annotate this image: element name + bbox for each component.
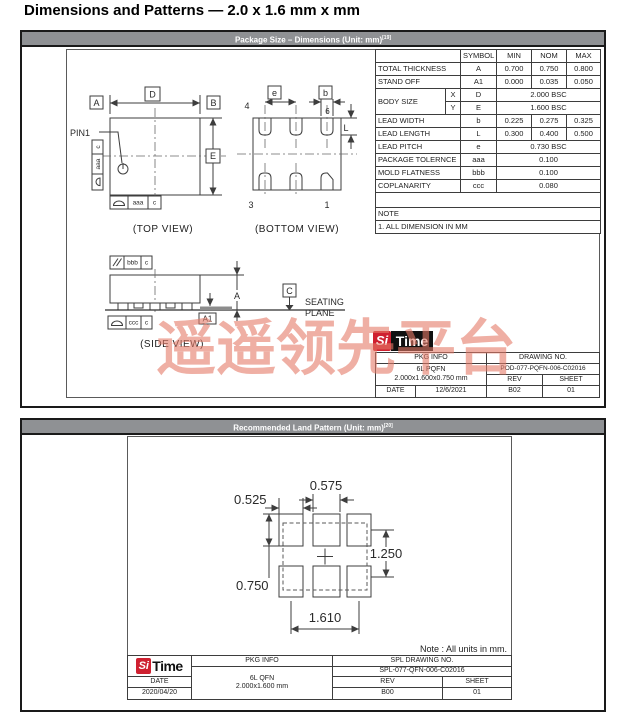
sheet-value: 01: [443, 688, 511, 699]
frame-bottom-aaa: aaa: [133, 200, 144, 207]
pin1-number-label: 1: [324, 200, 329, 210]
pin1-label: PIN1: [70, 128, 90, 138]
top-view-label: (TOP VIEW): [98, 224, 228, 235]
logo-si-mark: Si: [373, 331, 391, 351]
pkg-type: 6L QFN: [250, 675, 274, 683]
table-row: MOLD FLATNESS bbb 0.100: [376, 167, 601, 180]
logo-time-mark: Time: [151, 658, 182, 674]
dim-1250: 1.250: [369, 530, 403, 577]
pkg-size: 2.000x1.600x0.750 mm: [394, 375, 467, 383]
side-view-label: (SIDE VIEW): [107, 339, 237, 350]
dim-a-label: A: [234, 291, 240, 301]
dim-a1-label: A1: [203, 315, 213, 324]
pin1-pad-chamfered: [321, 173, 333, 190]
logo-time-mark: Time: [391, 331, 433, 351]
drawing-no-label: DRAWING NO.: [487, 353, 599, 364]
date-value: 12/6/2021: [416, 386, 487, 397]
drawing-no-value: SPL-077-QFN-006-C02016: [333, 667, 511, 677]
side-view-drawing: bbb c A1 A C: [98, 253, 388, 353]
pkg-info-label: PKG INFO: [376, 353, 487, 364]
dim-b-label: b: [323, 88, 328, 98]
dim-1610: 1.610: [291, 601, 359, 634]
dim-a-label: A: [93, 98, 99, 108]
section2-header-text: Recommended Land Pattern (Unit: mm): [233, 424, 384, 433]
seating-text-1: SEATING: [305, 297, 344, 307]
pkg-info-value: 6L QFN 2.000x1.600 mm: [192, 667, 333, 699]
land-pads: [279, 514, 371, 597]
drawing-no-value: POD-077-PQFN-006-C02016: [487, 364, 599, 375]
dim-b-label: B: [210, 98, 216, 108]
section1-header-text: Package Size – Dimensions (Unit: mm): [235, 36, 382, 45]
col-max: MAX: [567, 50, 601, 63]
pkg-info-label: PKG INFO: [192, 656, 333, 667]
title-block-1: PKG INFO 6L PQFN 2.000x1.600x0.750 mm DA…: [375, 352, 600, 398]
dim-outer-span: 1.610: [309, 610, 342, 625]
gdt-frame-left: c aaa: [92, 140, 103, 190]
dim-row-span: 1.250: [370, 546, 403, 561]
sitime-logo-2: Si Time: [128, 656, 192, 677]
section1-header-bar: Package Size – Dimensions (Unit: mm)[19]: [22, 32, 604, 47]
pkg-size: 2.000x1.600 mm: [236, 683, 288, 691]
lead-foot-shading: [200, 307, 232, 311]
sheet-label: SHEET: [543, 375, 599, 386]
dim-0525: 0.525: [234, 492, 317, 514]
frame-left-aaa: aaa: [95, 158, 102, 169]
date-label: DATE: [376, 386, 416, 397]
table-row: PACKAGE TOLERNCE aaa 0.100: [376, 154, 601, 167]
table-spacer-row: [376, 193, 601, 208]
pkg-type: 6L PQFN: [417, 366, 446, 374]
dim-center-pad-width: 0.575: [310, 478, 343, 493]
gdt-frame-bottom2: ccc c: [108, 316, 152, 329]
date-value: 2020/04/20: [128, 688, 192, 699]
gdt-frame-top: bbb c: [110, 256, 152, 269]
drawing-no-label: SPL DRAWING NO.: [333, 656, 511, 667]
seating-text-2: PLANE: [305, 308, 335, 318]
table-row: LEAD PITCH e 0.730 BSC: [376, 141, 601, 154]
bottom-view-drawing: e 4 b 6 L 3 1: [235, 78, 375, 228]
table-header-row: SYMBOL MIN NOM MAX: [376, 50, 601, 63]
datum-C: C: [283, 284, 296, 311]
page-title: Dimensions and Patterns — 2.0 x 1.6 mm x…: [24, 2, 360, 19]
datasheet-page: Dimensions and Patterns — 2.0 x 1.6 mm x…: [0, 0, 626, 716]
col-min: MIN: [497, 50, 532, 63]
dim-e-label: e: [272, 88, 277, 98]
col-symbol: SYMBOL: [461, 50, 497, 63]
dim-e-label: E: [210, 151, 216, 161]
gdt-frame-bottom: aaa c: [110, 196, 161, 209]
table-row: COPLANARITY ccc 0.080: [376, 180, 601, 193]
pin4-label: 4: [244, 101, 249, 111]
sitime-logo: Si Time: [373, 331, 433, 351]
col-nom: NOM: [532, 50, 567, 63]
table-note-row: NOTE: [376, 208, 601, 221]
dim-A: A: [200, 261, 244, 321]
rev-label: REV: [333, 677, 443, 688]
bottom-view-label: (BOTTOM VIEW): [232, 224, 362, 235]
dim-l-label: L: [343, 123, 348, 133]
dim-e-pitch: e 4: [244, 86, 296, 111]
section2-header-bar: Recommended Land Pattern (Unit: mm)[20]: [22, 420, 604, 435]
land-pattern-drawing: 0.575 0.525 0.750 1.250: [228, 468, 438, 648]
top-view-drawing: D A B E PIN1 c aaa: [62, 78, 234, 228]
dim-pad-height: 0.750: [236, 578, 269, 593]
dim-outer-pad-width: 0.525: [234, 492, 267, 507]
section2-header-footnote: [20]: [384, 423, 393, 429]
table-row: BODY SIZE X D 2.000 BSC: [376, 89, 601, 102]
dim-d-label: D: [149, 90, 156, 100]
table-row: LEAD LENGTH L 0.300 0.400 0.500: [376, 128, 601, 141]
units-note: Note : All units in mm.: [330, 644, 507, 654]
sheet-value: 01: [543, 386, 599, 397]
bottom-view-body: [237, 105, 357, 196]
dimensions-table: SYMBOL MIN NOM MAX TOTAL THICKNESS A 0.7…: [375, 49, 601, 234]
dim-L-length: L: [341, 104, 357, 149]
frame-bottom2-ccc: ccc: [129, 320, 140, 327]
logo-si-mark: Si: [136, 658, 151, 674]
pin3-label: 3: [248, 200, 253, 210]
datum-c-label: C: [286, 286, 293, 296]
table-row: LEAD WIDTH b 0.225 0.275 0.325: [376, 115, 601, 128]
frame-top-bbb: bbb: [127, 260, 138, 267]
pin6-label: 6: [325, 107, 330, 116]
rev-value: B00: [333, 688, 443, 699]
dim-E: E: [198, 118, 222, 195]
dim-0575: 0.575: [299, 478, 354, 512]
dim-0750: 0.750: [236, 514, 279, 593]
table-row: TOTAL THICKNESS A 0.700 0.750 0.800: [376, 63, 601, 76]
sheet-label: SHEET: [443, 677, 511, 688]
table-row: STAND OFF A1 0.000 0.035 0.050: [376, 76, 601, 89]
date-label: DATE: [128, 677, 192, 688]
section1-header-footnote: [19]: [382, 35, 391, 41]
dim-b-width: b 6: [309, 86, 345, 116]
title-block-2: Si Time DATE 2020/04/20 PKG INFO 6L QFN …: [127, 655, 512, 700]
table-note-row: 1. ALL DIMENSION IN MM: [376, 221, 601, 234]
rev-value: B02: [487, 386, 543, 397]
rev-label: REV: [487, 375, 543, 386]
pkg-info-value: 6L PQFN 2.000x1.600x0.750 mm: [376, 364, 487, 386]
